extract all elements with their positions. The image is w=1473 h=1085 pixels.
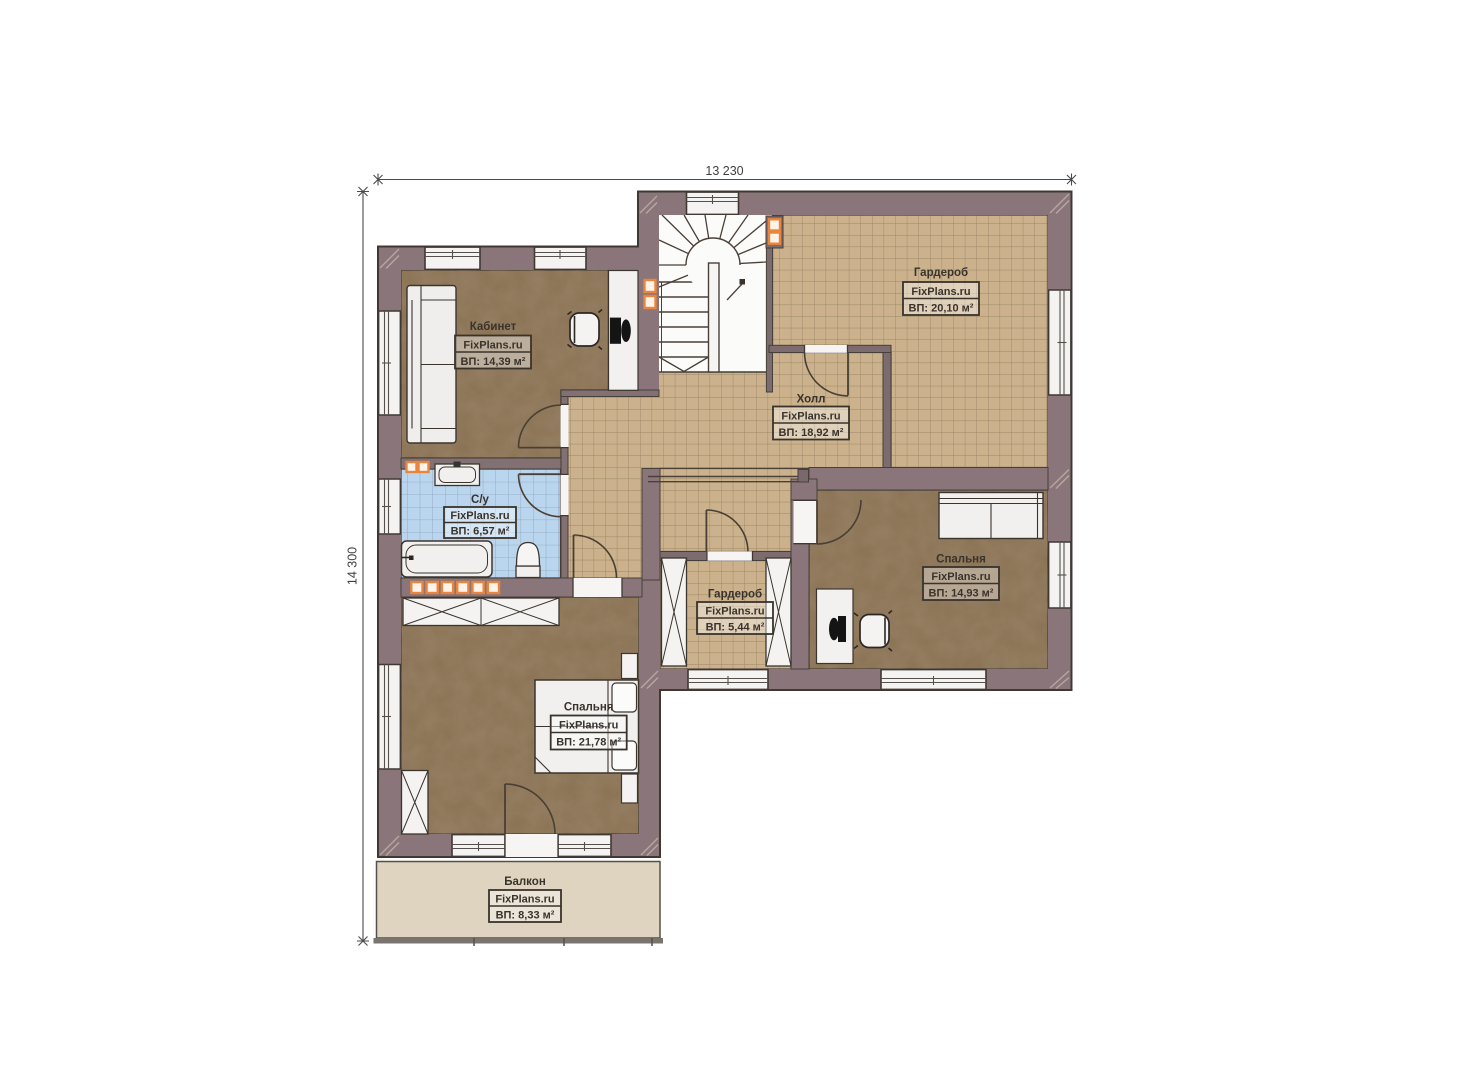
svg-text:Холл: Холл xyxy=(797,394,826,406)
svg-text:ВП: 14,93 м²: ВП: 14,93 м² xyxy=(929,587,994,599)
svg-text:ВП: 5,44 м²: ВП: 5,44 м² xyxy=(706,621,765,633)
svg-text:FixPlans.ru: FixPlans.ru xyxy=(911,286,970,298)
svg-text:Балкон: Балкон xyxy=(504,876,546,888)
svg-text:13 230: 13 230 xyxy=(705,164,743,178)
svg-text:FixPlans.ru: FixPlans.ru xyxy=(705,605,764,617)
svg-text:ВП: 21,78 м²: ВП: 21,78 м² xyxy=(556,736,621,748)
svg-text:ВП: 14,39 м²: ВП: 14,39 м² xyxy=(461,356,526,368)
svg-text:ВП: 18,92 м²: ВП: 18,92 м² xyxy=(779,427,844,439)
svg-text:ВП: 20,10 м²: ВП: 20,10 м² xyxy=(909,302,974,314)
svg-text:Гардероб: Гардероб xyxy=(914,267,968,279)
svg-text:Спальня: Спальня xyxy=(564,702,614,714)
svg-text:Спальня: Спальня xyxy=(936,554,986,566)
svg-text:FixPlans.ru: FixPlans.ru xyxy=(450,510,509,522)
svg-text:14 300: 14 300 xyxy=(346,547,360,585)
svg-text:Кабинет: Кабинет xyxy=(470,321,517,333)
svg-text:ВП: 8,33 м²: ВП: 8,33 м² xyxy=(496,909,555,921)
svg-text:ВП: 6,57 м²: ВП: 6,57 м² xyxy=(451,526,510,538)
svg-text:С/у: С/у xyxy=(471,494,490,506)
svg-text:FixPlans.ru: FixPlans.ru xyxy=(463,339,522,351)
svg-text:FixPlans.ru: FixPlans.ru xyxy=(495,893,554,905)
svg-text:Гардероб: Гардероб xyxy=(708,589,762,601)
svg-text:FixPlans.ru: FixPlans.ru xyxy=(781,410,840,422)
svg-text:FixPlans.ru: FixPlans.ru xyxy=(931,571,990,583)
svg-text:FixPlans.ru: FixPlans.ru xyxy=(559,719,618,731)
